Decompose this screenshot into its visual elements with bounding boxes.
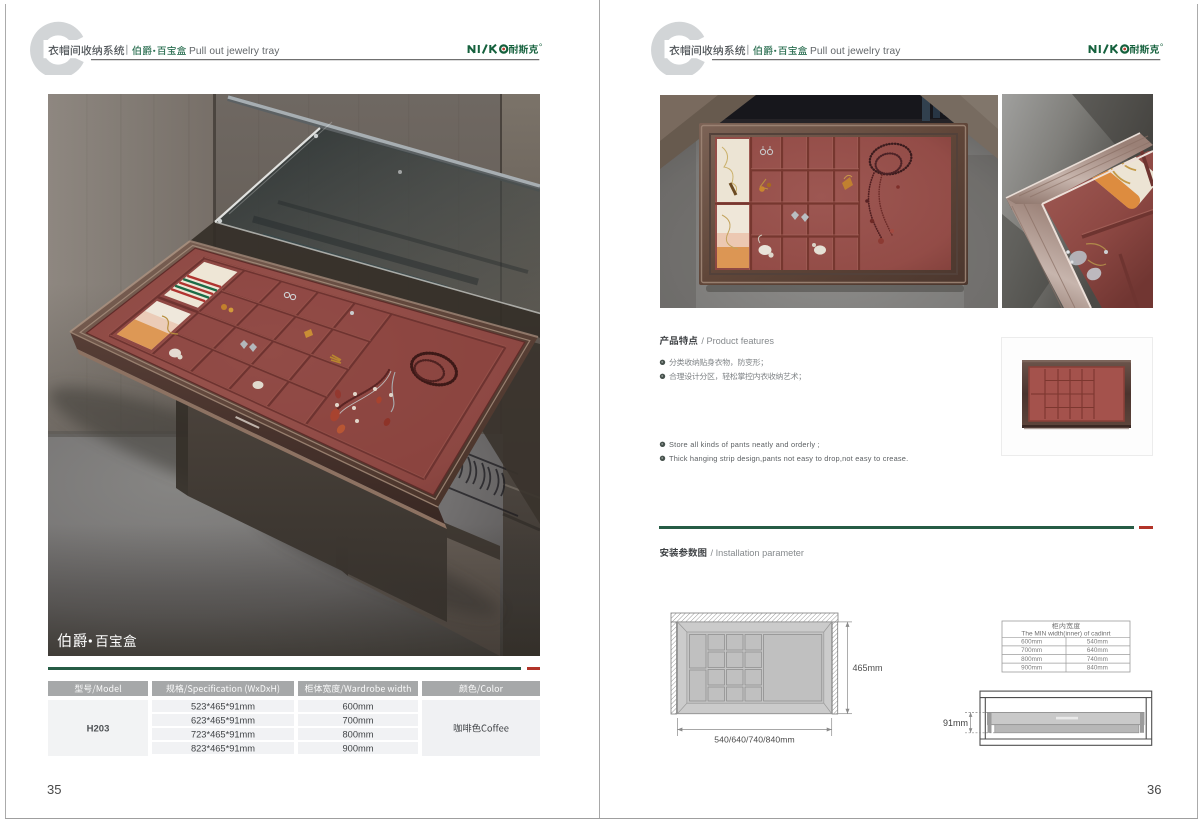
svg-text:900mm: 900mm: [1021, 664, 1042, 671]
svg-text:600mm: 600mm: [1021, 639, 1042, 646]
svg-text:91mm: 91mm: [943, 718, 968, 728]
svg-text:700mm: 700mm: [1021, 647, 1042, 654]
svg-text:The MIN width(inner) of cadinr: The MIN width(inner) of cadinrt: [1021, 631, 1110, 638]
svg-text:/ Product features: / Product features: [701, 336, 774, 346]
svg-text:800mm: 800mm: [342, 730, 373, 740]
svg-text:540mm: 540mm: [1087, 639, 1108, 646]
svg-text:465mm: 465mm: [853, 663, 883, 673]
svg-text:Thick hanging strip design,pan: Thick hanging strip design,pants not eas…: [669, 454, 908, 463]
svg-text:723*465*91mm: 723*465*91mm: [191, 730, 255, 740]
svg-text:623*465*91mm: 623*465*91mm: [191, 716, 255, 726]
svg-text:H203: H203: [87, 724, 110, 735]
svg-text:823*465*91mm: 823*465*91mm: [191, 744, 255, 754]
svg-text:523*465*91mm: 523*465*91mm: [191, 702, 255, 712]
svg-text:/ Installation parameter: / Installation parameter: [711, 548, 804, 558]
svg-text:Store all kinds of pants neatl: Store all kinds of pants neatly and orde…: [669, 440, 820, 449]
svg-text:740mm: 740mm: [1087, 656, 1108, 663]
svg-text:640mm: 640mm: [1087, 647, 1108, 654]
svg-text:900mm: 900mm: [342, 744, 373, 754]
svg-text:800mm: 800mm: [1021, 656, 1042, 663]
svg-text:540/640/740/840mm: 540/640/740/840mm: [714, 735, 795, 745]
svg-text:Pull out jewelry tray: Pull out jewelry tray: [810, 46, 901, 57]
svg-text:600mm: 600mm: [342, 702, 373, 712]
svg-text:840mm: 840mm: [1087, 664, 1108, 671]
svg-text:700mm: 700mm: [342, 716, 373, 726]
